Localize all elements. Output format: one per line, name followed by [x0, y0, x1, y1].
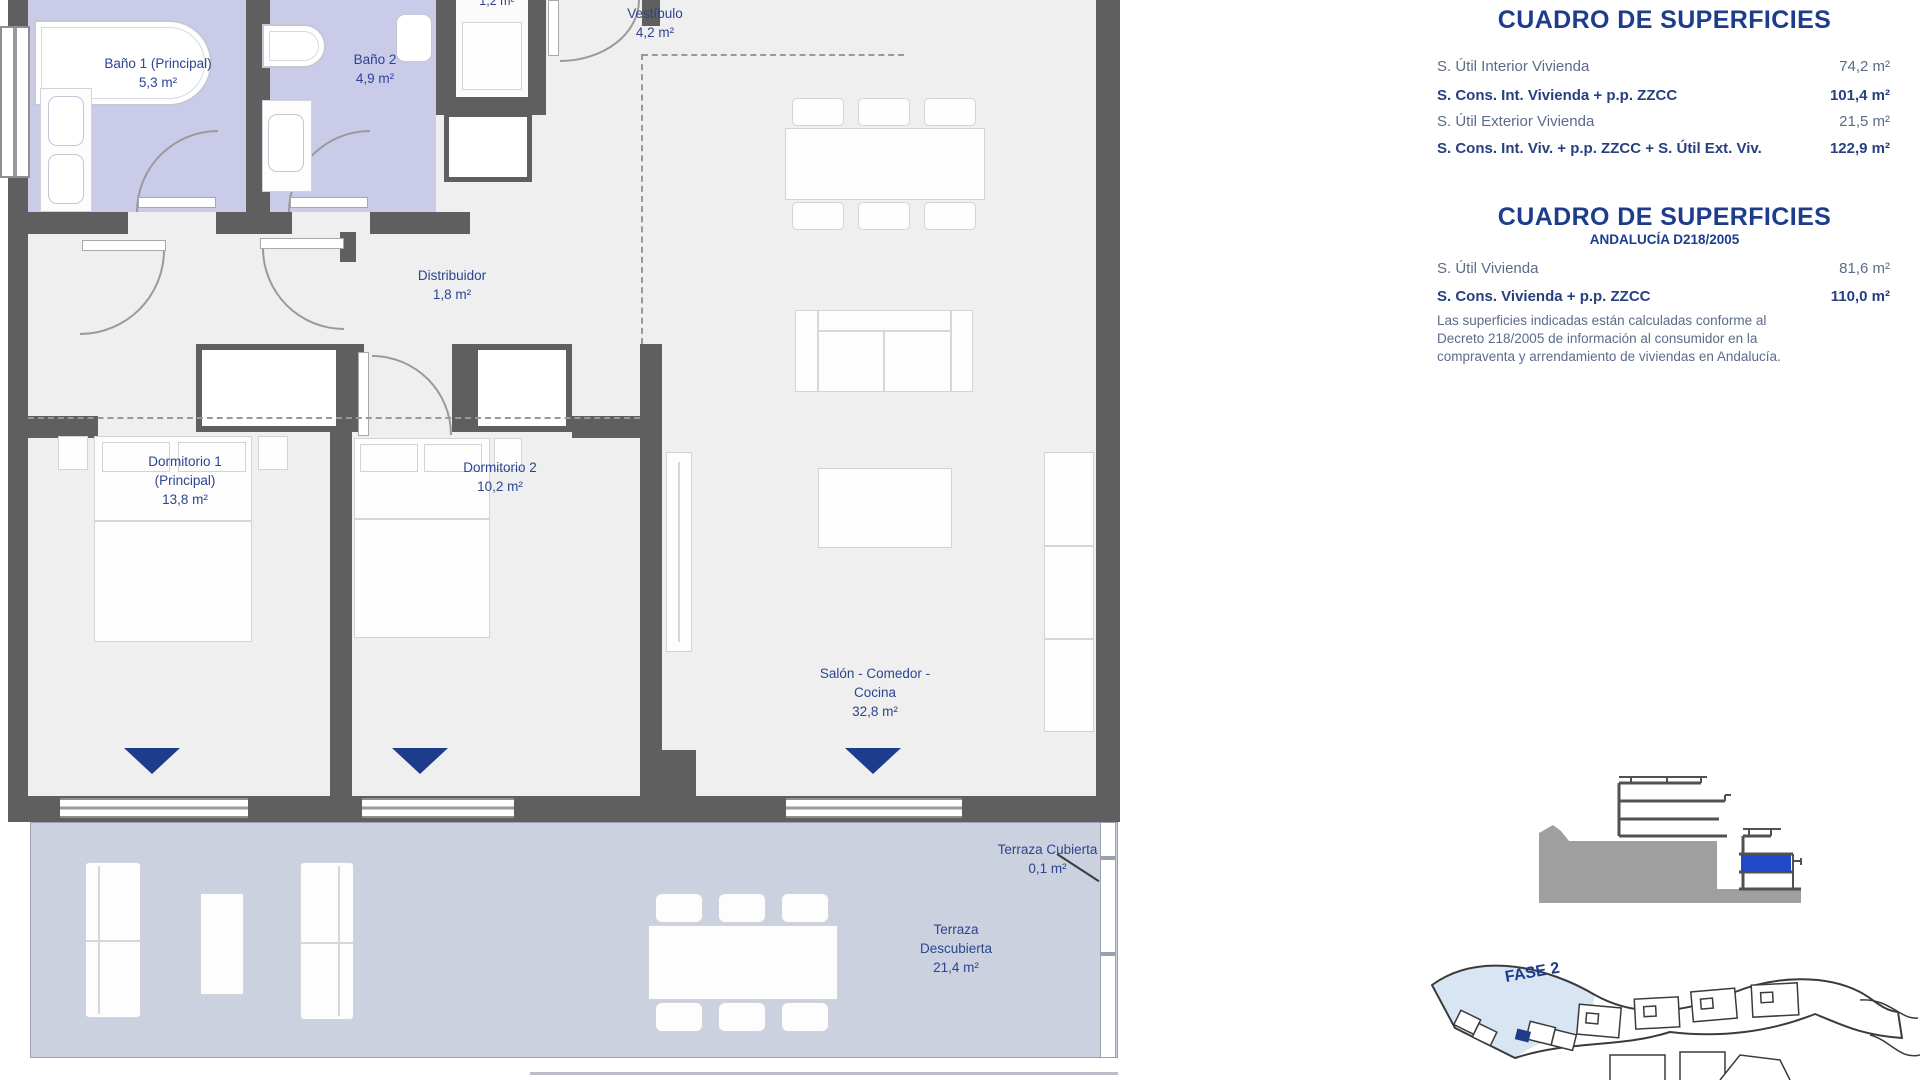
row-value: 110,0 m² — [1831, 288, 1890, 305]
wall — [216, 212, 292, 234]
dining-chair — [792, 202, 844, 230]
wall-unit-line — [1045, 545, 1093, 547]
dining-chair — [792, 98, 844, 126]
door-direction-icon — [124, 748, 180, 774]
room-label-dormitorio1: Dormitorio 1 (Principal) 13,8 m² — [115, 452, 255, 509]
sofa-armrest-line — [817, 311, 819, 391]
floorplan-page: Baño 1 (Principal) 5,3 m² Baño 2 4,9 m² … — [0, 0, 1920, 1080]
room-name: Baño 2 — [354, 52, 397, 67]
outdoor-chair — [781, 893, 829, 923]
room-label-bano2: Baño 2 4,9 m² — [300, 50, 450, 88]
row-value: 74,2 m² — [1839, 58, 1890, 75]
table-row: S. Útil Exterior Vivienda 21,5 m² — [1437, 113, 1890, 133]
row-value: 101,4 m² — [1830, 87, 1890, 104]
table-title: CUADRO DE SUPERFICIES — [1437, 6, 1892, 35]
nightstand — [58, 436, 88, 470]
room-name: Vestíbulo — [627, 6, 683, 21]
wall-unit — [1044, 452, 1094, 732]
room-label-distribuidor: Distribuidor 1,8 m² — [382, 266, 522, 304]
row-label: S. Útil Vivienda — [1437, 260, 1538, 277]
sink-basin — [48, 154, 84, 204]
door-leaf — [138, 197, 216, 208]
row-label: S. Cons. Vivienda + p.p. ZZCC — [1437, 288, 1651, 305]
terrace-edge-tick — [1100, 952, 1116, 956]
room-area: 1,2 m² — [479, 0, 514, 8]
lounger-line — [338, 866, 340, 1016]
row-value: 122,9 m² — [1830, 140, 1890, 157]
dining-chair — [858, 202, 910, 230]
door-leaf — [358, 352, 369, 436]
outdoor-chair — [655, 1002, 703, 1032]
room-area: 10,2 m² — [477, 479, 523, 494]
washing-machine — [462, 22, 522, 90]
wall — [528, 0, 546, 97]
door-direction-icon — [845, 748, 901, 774]
door-direction-icon — [392, 748, 448, 774]
dining-chair — [924, 98, 976, 126]
highlighted-unit-section — [1741, 855, 1791, 872]
room-name: Dormitorio 2 — [463, 460, 537, 475]
table-title: CUADRO DE SUPERFICIES — [1437, 203, 1892, 232]
outdoor-chair — [781, 1002, 829, 1032]
row-label: S. Útil Interior Vivienda — [1437, 58, 1589, 75]
outdoor-chair — [718, 1002, 766, 1032]
pillow — [360, 444, 418, 472]
building-section-diagram — [1535, 765, 1805, 905]
wall — [572, 416, 640, 438]
sofa-armrest-line — [950, 311, 952, 391]
room-label-terraza-descubierta: Terraza Descubierta 21,4 m² — [898, 920, 1014, 977]
sideboard-line — [678, 462, 680, 642]
terrace-bottom-line — [530, 1072, 1118, 1075]
kitchen-boundary-dashed-line — [641, 54, 643, 344]
room-area: 32,8 m² — [852, 704, 898, 719]
room-label-vestibulo: Vestíbulo 4,2 m² — [600, 4, 710, 42]
room-area: 21,4 m² — [933, 960, 979, 975]
room-name2: (Principal) — [155, 473, 216, 488]
kitchen-boundary-dashed-line — [642, 54, 904, 56]
room-name: Distribuidor — [418, 268, 486, 283]
room-name2: Cocina — [854, 685, 896, 700]
room-name2: Descubierta — [920, 941, 992, 956]
side-table — [200, 893, 244, 995]
wall — [8, 232, 28, 796]
room-label-dormitorio2: Dormitorio 2 10,2 m² — [440, 458, 560, 496]
room-label-bano1: Baño 1 (Principal) 5,3 m² — [63, 54, 253, 92]
row-label: S. Cons. Int. Vivienda + p.p. ZZCC — [1437, 87, 1677, 104]
row-label: S. Útil Exterior Vivienda — [1437, 113, 1594, 130]
lounger-line — [301, 942, 353, 944]
outdoor-chair — [718, 893, 766, 923]
room-name: Salón - Comedor - — [820, 666, 930, 681]
room-area: 5,3 m² — [139, 75, 177, 90]
door-leaf — [260, 238, 344, 249]
outdoor-table — [648, 925, 838, 1000]
dining-table — [785, 128, 985, 200]
wall — [1096, 0, 1120, 822]
table-row: S. Útil Vivienda 81,6 m² — [1437, 260, 1890, 280]
wall — [330, 432, 352, 796]
beam-dashed-line — [28, 417, 640, 419]
sink-basin — [268, 114, 304, 172]
room-area: 1,8 m² — [433, 287, 471, 302]
hall-closet — [444, 112, 532, 182]
room-name: Dormitorio 1 — [148, 454, 222, 469]
row-label: S. Cons. Int. Viv. + p.p. ZZCC + S. Útil… — [1437, 140, 1762, 157]
table-row: S. Cons. Vivienda + p.p. ZZCC 110,0 m² — [1437, 288, 1890, 308]
row-value: 81,6 m² — [1839, 260, 1890, 277]
wall — [8, 212, 128, 234]
table-row: S. Cons. Int. Vivienda + p.p. ZZCC 101,4… — [1437, 87, 1890, 107]
room-area: 4,9 m² — [356, 71, 394, 86]
floor-plan: Baño 1 (Principal) 5,3 m² Baño 2 4,9 m² … — [0, 0, 1130, 1080]
table-row: S. Cons. Int. Viv. + p.p. ZZCC + S. Útil… — [1437, 140, 1890, 160]
dining-chair — [858, 98, 910, 126]
window — [362, 798, 514, 818]
bed-cover-line — [355, 518, 489, 520]
row-value: 21,5 m² — [1839, 113, 1890, 130]
bed-cover-line — [95, 520, 251, 522]
room-area: 4,2 m² — [636, 25, 674, 40]
wall-unit-line — [1045, 638, 1093, 640]
wall — [662, 750, 696, 796]
room-label-terraza-cubierta: Terraza Cubierta 0,1 m² — [975, 840, 1120, 878]
sun-lounger — [300, 862, 354, 1020]
room-label-salon: Salón - Comedor - Cocina 32,8 m² — [800, 664, 950, 721]
site-plan: FASE 2 — [1420, 940, 1920, 1080]
dining-chair — [924, 202, 976, 230]
outdoor-chair — [655, 893, 703, 923]
sink-basin — [48, 96, 84, 146]
table-subtitle: ANDALUCÍA D218/2005 — [1437, 232, 1892, 247]
room-area: 13,8 m² — [162, 492, 208, 507]
sofa-divider-line — [883, 330, 885, 391]
window — [60, 798, 248, 818]
legal-note: Las superficies indicadas están calculad… — [1437, 312, 1813, 366]
room-name: Terraza Cubierta — [998, 842, 1098, 857]
door-leaf — [290, 197, 368, 208]
entrance-door-leaf — [548, 0, 559, 56]
lounger-line — [86, 940, 140, 942]
room-area: 0,1 m² — [1028, 861, 1066, 876]
door-leaf — [82, 240, 166, 251]
table-row: S. Útil Interior Vivienda 74,2 m² — [1437, 58, 1890, 78]
wall — [370, 212, 470, 234]
wall — [640, 344, 662, 796]
window — [0, 26, 30, 178]
window — [786, 798, 962, 818]
room-name: Baño 1 (Principal) — [104, 56, 211, 71]
nightstand — [258, 436, 288, 470]
wall — [8, 416, 98, 438]
rug — [818, 468, 952, 548]
room-label-lavadero: 1,2 m² — [462, 0, 532, 11]
room-name: Terraza — [933, 922, 978, 937]
